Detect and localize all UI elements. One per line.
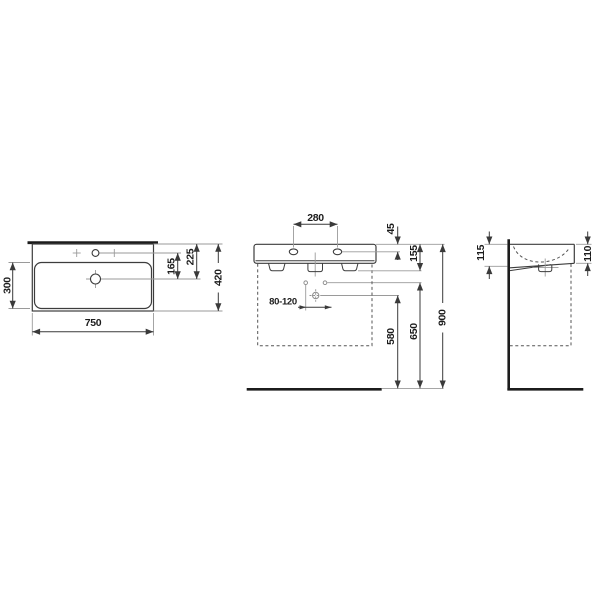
front-bracket-right (342, 263, 359, 271)
dim-label-420: 420 (212, 269, 224, 286)
front-tap-hole-left (289, 249, 297, 255)
side-bowl-hidden-curve (514, 247, 570, 263)
front-supply-left (304, 281, 308, 285)
front-bracket-left (269, 263, 286, 271)
front-tap-hole-right (333, 249, 341, 255)
dim-label-900: 900 (437, 309, 449, 326)
dim-label-280: 280 (307, 212, 324, 224)
dim-label-300: 300 (2, 277, 14, 294)
arrowhead (300, 305, 307, 309)
dim-label-750: 750 (85, 317, 102, 329)
plan-drain-hole (91, 274, 101, 284)
plan-tap-hole (92, 250, 99, 257)
washbasin-dimension-drawing: 300 750 165 225 420 (0, 0, 600, 600)
dim-label-110: 110 (582, 245, 594, 261)
side-hidden-outline (510, 264, 571, 346)
front-supply-right (323, 281, 327, 285)
dim-label-225: 225 (185, 248, 197, 265)
dim-label-165: 165 (166, 258, 178, 275)
technical-drawing-page: 300 750 165 225 420 (0, 0, 600, 600)
dim-label-580: 580 (385, 328, 397, 345)
plan-view: 300 750 165 225 420 (2, 243, 225, 336)
front-view: 280 45 155 80-120 580 650 900 (247, 212, 449, 389)
dim-label-45: 45 (385, 223, 397, 235)
dim-label-155: 155 (408, 245, 420, 262)
side-view: 115 110 (475, 232, 594, 391)
arrowhead (325, 305, 332, 309)
dim-label-80-120: 80-120 (269, 297, 297, 308)
dim-label-650: 650 (408, 323, 420, 340)
dim-label-115: 115 (475, 244, 487, 260)
plan-bowl-outline (35, 263, 152, 309)
